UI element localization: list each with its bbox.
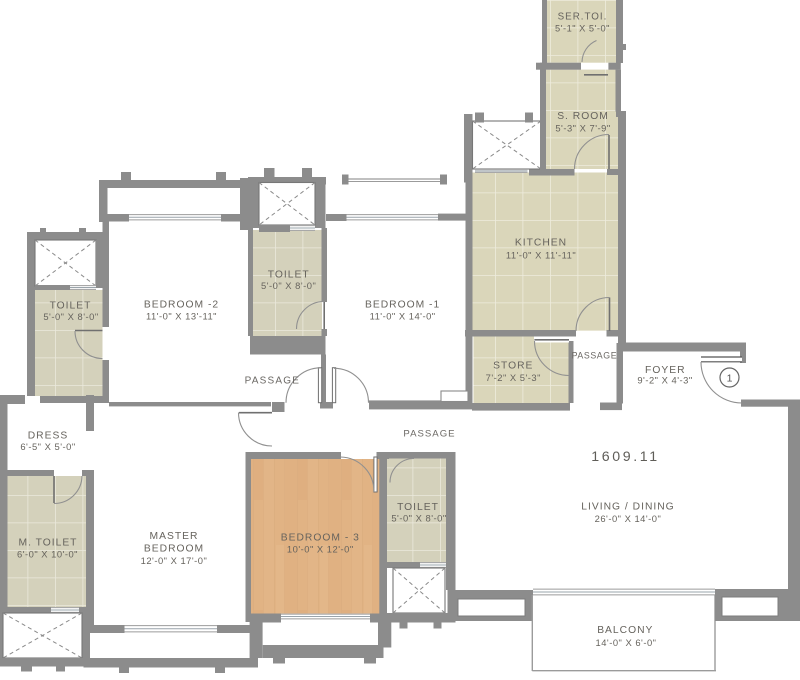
- svg-text:M. TOILET: M. TOILET: [19, 538, 78, 549]
- svg-text:1609.11: 1609.11: [591, 449, 659, 465]
- svg-text:6'-5" X 5'-0": 6'-5" X 5'-0": [20, 441, 75, 452]
- svg-text:6'-0" X 10'-0": 6'-0" X 10'-0": [17, 549, 78, 560]
- svg-text:SER.TOI.: SER.TOI.: [558, 12, 608, 23]
- svg-text:5'-1" X 5'-0": 5'-1" X 5'-0": [555, 24, 610, 34]
- svg-text:PASSAGE: PASSAGE: [403, 429, 455, 440]
- svg-text:10'-0" X 12'-0": 10'-0" X 12'-0": [287, 543, 354, 554]
- svg-text:BEDROOM: BEDROOM: [144, 543, 204, 554]
- svg-text:BEDROOM -1: BEDROOM -1: [365, 300, 440, 311]
- svg-text:BEDROOM -2: BEDROOM -2: [144, 300, 219, 311]
- svg-text:STORE: STORE: [493, 360, 533, 371]
- svg-text:BEDROOM - 3: BEDROOM - 3: [281, 532, 360, 543]
- svg-text:26'-0" X 14'-0": 26'-0" X 14'-0": [595, 513, 662, 524]
- svg-text:LIVING / DINING: LIVING / DINING: [581, 501, 674, 512]
- svg-text:PASSAGE: PASSAGE: [572, 351, 618, 361]
- svg-text:TOILET: TOILET: [397, 502, 439, 513]
- svg-text:KITCHEN: KITCHEN: [515, 238, 567, 249]
- svg-text:S. ROOM: S. ROOM: [557, 111, 609, 122]
- svg-text:TOILET: TOILET: [268, 270, 310, 281]
- svg-text:12'-0" X 17'-0": 12'-0" X 17'-0": [141, 555, 208, 566]
- svg-text:11'-0" X 14'-0": 11'-0" X 14'-0": [370, 311, 436, 322]
- svg-text:DRESS: DRESS: [28, 430, 68, 441]
- svg-text:TOILET: TOILET: [50, 301, 92, 312]
- svg-text:1: 1: [727, 373, 733, 385]
- svg-text:7'-2" X 5'-3": 7'-2" X 5'-3": [486, 372, 541, 383]
- svg-text:11'-0" X 13'-11": 11'-0" X 13'-11": [146, 311, 217, 322]
- svg-text:14'-0" X 6'-0": 14'-0" X 6'-0": [595, 637, 656, 648]
- svg-text:BALCONY: BALCONY: [597, 625, 653, 636]
- svg-text:11'-0" X 11'-11": 11'-0" X 11'-11": [506, 250, 576, 261]
- svg-text:MASTER: MASTER: [150, 531, 199, 542]
- svg-text:5'-0" X 8'-0": 5'-0" X 8'-0": [43, 311, 98, 322]
- svg-text:5'-0" X 8'-0": 5'-0" X 8'-0": [261, 280, 316, 291]
- svg-text:PASSAGE: PASSAGE: [245, 375, 300, 386]
- svg-text:5'-3" X 7'-9": 5'-3" X 7'-9": [555, 123, 610, 134]
- svg-text:9'-2" X 4'-3": 9'-2" X 4'-3": [637, 375, 692, 386]
- svg-text:5'-0" X 8'-0": 5'-0" X 8'-0": [391, 513, 446, 524]
